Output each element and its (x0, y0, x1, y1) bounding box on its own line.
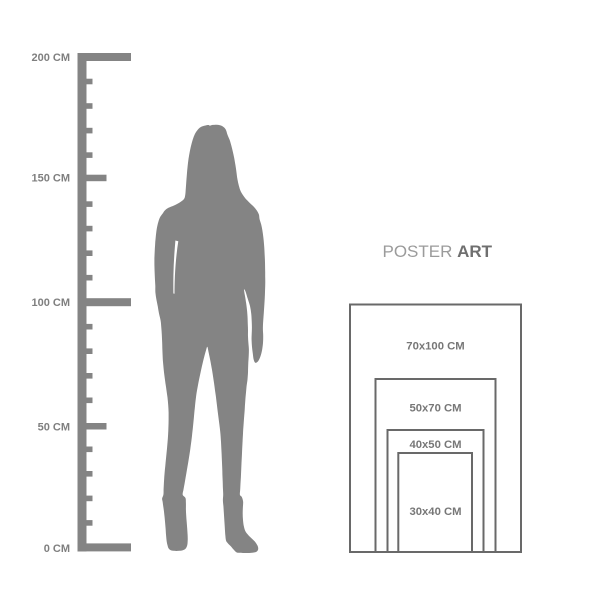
svg-text:200 CM: 200 CM (31, 52, 70, 64)
svg-text:50x70 CM: 50x70 CM (409, 402, 461, 414)
svg-text:70x100 CM: 70x100 CM (406, 341, 464, 353)
svg-text:POSTER ART: POSTER ART (383, 242, 493, 261)
svg-text:30x40 CM: 30x40 CM (409, 506, 461, 518)
svg-text:150 CM: 150 CM (31, 172, 70, 184)
svg-text:40x50 CM: 40x50 CM (409, 439, 461, 451)
svg-text:0 CM: 0 CM (44, 543, 70, 555)
svg-text:100 CM: 100 CM (31, 297, 70, 309)
svg-text:50 CM: 50 CM (38, 421, 70, 433)
